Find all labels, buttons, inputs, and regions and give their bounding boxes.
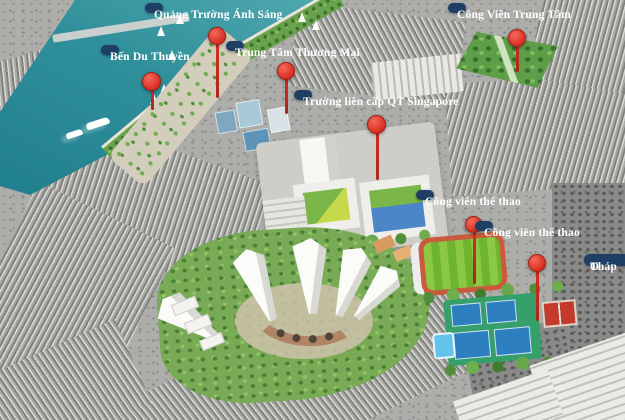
tennis-court bbox=[450, 302, 482, 327]
basketball-court bbox=[542, 299, 578, 328]
map-pin-marina bbox=[142, 72, 161, 91]
label-text: Bến Du Thuyền bbox=[110, 50, 190, 65]
commercial-block bbox=[215, 109, 239, 134]
sailboat-icon bbox=[312, 20, 320, 30]
label-text: Công viên thể thao bbox=[425, 195, 521, 210]
label-text: Quảng Trường Ánh Sáng bbox=[154, 8, 283, 23]
tennis-court bbox=[485, 299, 517, 324]
label-text: Công viên thể thao bbox=[484, 226, 580, 241]
label-text: Công Viên Trung Tâm bbox=[457, 8, 571, 23]
tennis-court bbox=[453, 330, 491, 360]
map-pin-light-square bbox=[208, 27, 226, 45]
map-pin-stem bbox=[216, 42, 219, 98]
masterplan-rendering: Quảng Trường Ánh Sáng Công Viên Trung Tâ… bbox=[0, 0, 625, 420]
label-text: Trung Tâm Thương Mại bbox=[235, 46, 360, 61]
map-pin-school bbox=[367, 115, 386, 134]
map-pin-central-park bbox=[508, 29, 526, 47]
label-text-line2: O bbox=[590, 260, 599, 275]
map-pin-shopping-mall bbox=[277, 62, 295, 80]
label-shopping-mall: Trung Tâm Thương Mại bbox=[226, 41, 244, 51]
label-tower-partial: Tháp O bbox=[584, 254, 625, 266]
map-pin-stem bbox=[376, 126, 379, 180]
swimming-pool bbox=[432, 332, 456, 360]
label-sports-park-lower: Công viên thể thao bbox=[475, 221, 493, 231]
label-international-school: Trường liên cấp QT Singapore bbox=[294, 90, 312, 100]
sports-park bbox=[407, 219, 585, 377]
sailboat-icon bbox=[157, 26, 165, 36]
label-text: Trường liên cấp QT Singapore bbox=[303, 95, 459, 110]
tennis-court bbox=[494, 326, 532, 356]
label-light-square: Quảng Trường Ánh Sáng bbox=[145, 3, 163, 13]
sailboat-icon bbox=[298, 12, 306, 22]
school-lawn-courtyard bbox=[303, 188, 351, 225]
label-marina: Bến Du Thuyền bbox=[101, 45, 119, 55]
rowhouses-top-right bbox=[444, 72, 625, 196]
label-central-park: Công Viên Trung Tâm bbox=[448, 3, 466, 13]
commercial-block bbox=[235, 99, 263, 129]
label-sports-park-upper: Công viên thể thao bbox=[416, 190, 434, 200]
map-pin-stem bbox=[473, 226, 476, 284]
map-pin-sports-park-lower bbox=[528, 254, 546, 272]
